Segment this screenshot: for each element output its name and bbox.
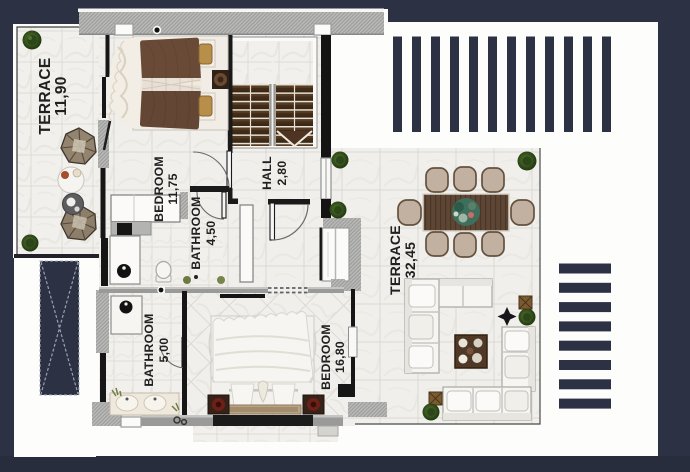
- svg-text:TERRACE: TERRACE: [387, 225, 403, 295]
- svg-text:2,80: 2,80: [275, 161, 289, 186]
- svg-text:11,75: 11,75: [166, 173, 180, 204]
- svg-text:BEDROOM: BEDROOM: [152, 156, 166, 222]
- svg-text:32,45: 32,45: [402, 242, 418, 279]
- svg-text:11,90: 11,90: [53, 76, 70, 115]
- svg-text:HALL: HALL: [260, 156, 274, 190]
- svg-text:16,80: 16,80: [333, 341, 347, 373]
- svg-text:BEDROOM: BEDROOM: [319, 324, 333, 390]
- svg-text:5,00: 5,00: [157, 338, 171, 363]
- svg-text:TERRACE: TERRACE: [37, 57, 54, 134]
- svg-text:BATHROOM: BATHROOM: [189, 196, 203, 269]
- svg-text:BATHROOM: BATHROOM: [142, 313, 156, 386]
- svg-text:4,50: 4,50: [204, 221, 218, 246]
